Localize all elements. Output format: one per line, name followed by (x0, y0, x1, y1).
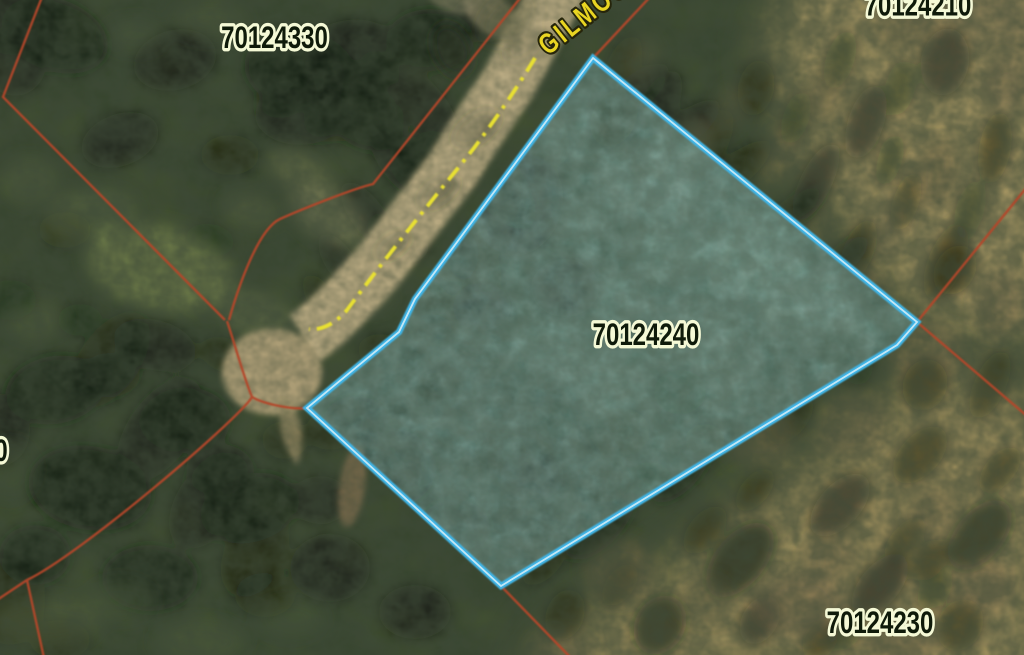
svg-text:70124240: 70124240 (593, 316, 700, 352)
svg-text:70124210: 70124210 (865, 0, 972, 22)
svg-text:0: 0 (0, 432, 8, 468)
svg-text:70124230: 70124230 (827, 604, 934, 640)
svg-text:70124330: 70124330 (221, 19, 328, 55)
